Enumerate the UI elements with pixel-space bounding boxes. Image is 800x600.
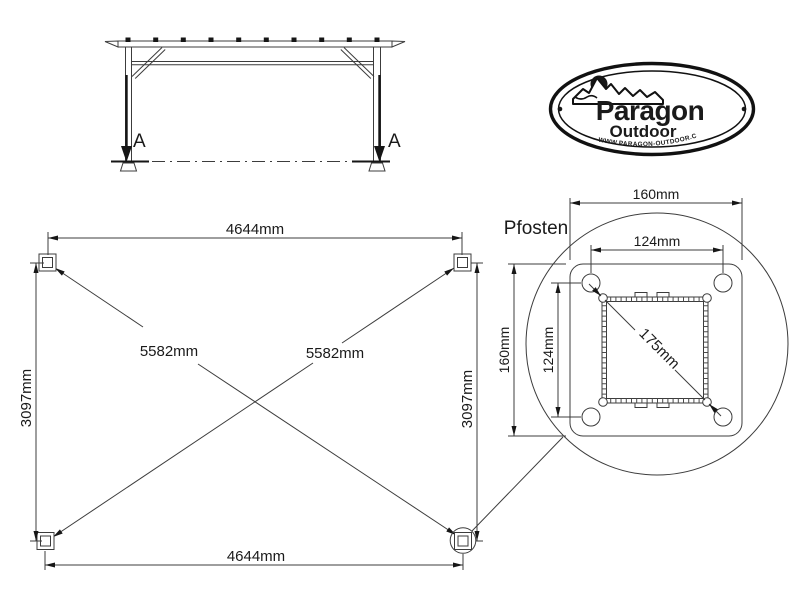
logo-right-dot-icon [742, 107, 747, 112]
post-base-detail-view: Pfosten [496, 186, 788, 475]
diagonal-tr-bl [53, 268, 454, 537]
dim-text-hole-spacing-horizontal: 124mm [634, 233, 681, 249]
corner-bolt-top-right [703, 294, 712, 303]
dim-text-width-bottom: 4644mm [227, 548, 285, 565]
dim-text-plate-width: 160mm [633, 186, 680, 202]
post-symbol-top-right [454, 254, 471, 271]
logo-left-dot-icon [558, 107, 563, 112]
roof-edge-left [105, 41, 118, 47]
diagonal-dim-left: 5582mm [140, 343, 198, 360]
logo-sub-brand-text: Outdoor [609, 122, 676, 141]
bolt-hole-top-left [582, 274, 600, 292]
drawing-svg: A A Paragon Outdoor WWW.PARAGON-OUTDOOR.… [0, 0, 800, 600]
detail-title: Pfosten [504, 218, 568, 239]
detail-leader-line [472, 437, 563, 531]
bolt-hole-bottom-left [582, 408, 600, 426]
brand-logo: Paragon Outdoor WWW.PARAGON-OUTDOOR.COM [0, 0, 754, 155]
technical-drawing-page: A A Paragon Outdoor WWW.PARAGON-OUTDOOR.… [0, 0, 800, 600]
post-foot-right [369, 163, 385, 171]
dim-text-height-left: 3097mm [18, 369, 35, 427]
dimension-width-bottom: 4644mm [45, 548, 463, 570]
section-label-right: A [388, 131, 401, 152]
dimension-height-left: 3097mm [18, 263, 44, 541]
foundation-plan-view: 5582mm 5582mm 4644mm [18, 221, 563, 570]
bolt-hole-top-right [714, 274, 732, 292]
dimension-height-right: 3097mm [459, 263, 483, 541]
pergola-elevation-view: A A [105, 38, 405, 172]
corner-brace-right [341, 48, 374, 79]
post-symbol-bottom-right [450, 528, 476, 554]
dim-text-plate-height: 160mm [496, 327, 512, 374]
diagonal-dim-right: 5582mm [306, 345, 364, 362]
bolt-hole-bottom-right [714, 408, 732, 426]
section-label-left: A [133, 131, 146, 152]
post-foot-left [121, 163, 137, 171]
section-arrow-right [374, 75, 385, 162]
dim-text-width-top: 4644mm [226, 221, 284, 238]
dim-text-height-right: 3097mm [459, 370, 476, 428]
roof-edge-right [392, 41, 405, 47]
corner-bolt-bottom-left [599, 398, 608, 407]
section-arrow-left [121, 75, 132, 162]
dim-text-hole-spacing-vertical: 124mm [540, 327, 556, 374]
dimension-width-top: 4644mm [48, 221, 462, 255]
corner-brace-left [132, 48, 165, 79]
